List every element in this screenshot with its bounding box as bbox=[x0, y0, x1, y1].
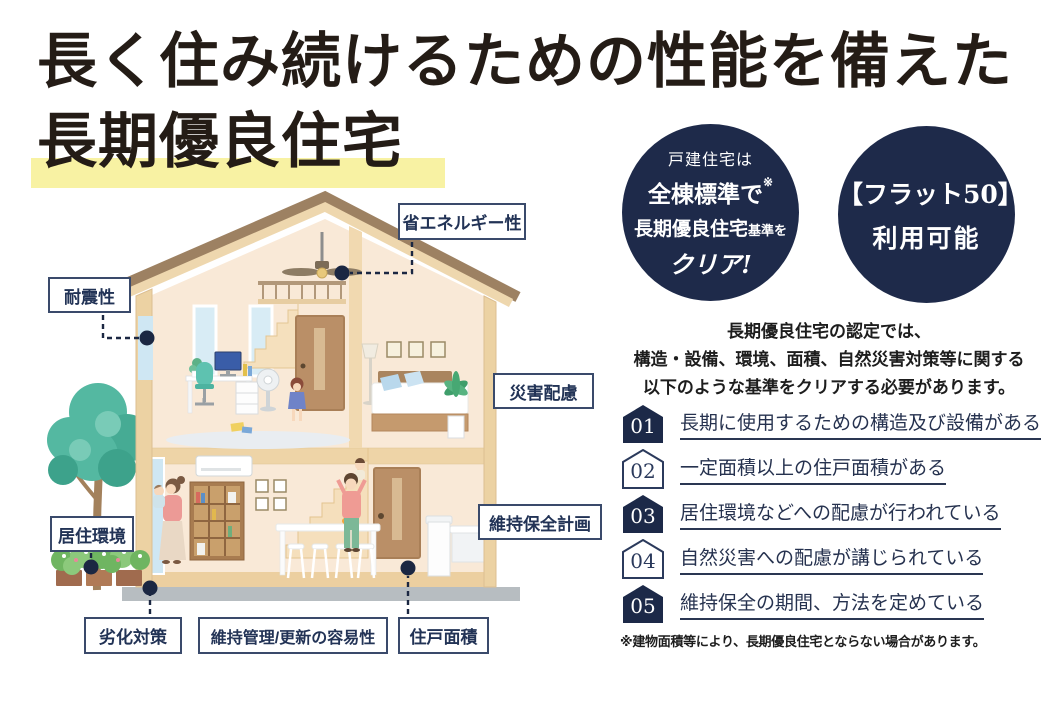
house-label-maintenance-plan: 維持保全計画 bbox=[478, 504, 602, 540]
badge-standard-line1: 戸建住宅は bbox=[668, 146, 753, 170]
page-title-line1: 長く住み続けるための性能を備えた bbox=[37, 32, 1013, 92]
house-label-disaster-consideration: 災害配慮 bbox=[493, 373, 594, 409]
intro-line3: 以下のような基準をクリアする必要があります。 bbox=[598, 374, 1060, 402]
house-number-badge-outline: 04 bbox=[622, 539, 664, 579]
criteria-text: 居住環境などへの配慮が行われている bbox=[680, 498, 1001, 530]
svg-text:04: 04 bbox=[630, 549, 655, 573]
page-title-line2: 長期優良住宅 bbox=[37, 112, 403, 172]
asterisk-note: ※ bbox=[763, 175, 773, 189]
svg-text:03: 03 bbox=[630, 504, 655, 528]
svg-text:01: 01 bbox=[630, 414, 655, 438]
house-number-badge-filled: 05 bbox=[622, 584, 664, 624]
house-label-deterioration-countermeasure: 劣化対策 bbox=[84, 617, 182, 654]
badge-flat50: 【フラット50】 利用可能 bbox=[838, 126, 1015, 303]
svg-text:05: 05 bbox=[630, 594, 655, 618]
badge-flat50-line2: 利用可能 bbox=[872, 219, 980, 255]
badge-flat50-line1: 【フラット50】 bbox=[838, 175, 1015, 211]
badge-standard-clear: 戸建住宅は 全棟標準で※ 長期優良住宅基準を クリア! bbox=[622, 124, 799, 301]
certification-intro: 長期優良住宅の認定では、 構造・設備、環境、面積、自然災害対策等に関する 以下の… bbox=[598, 318, 1060, 402]
house-label-living-environment: 居住環境 bbox=[50, 516, 134, 552]
house-label-maintainability: 維持管理/更新の容易性 bbox=[198, 617, 388, 654]
house-number-badge-outline: 02 bbox=[622, 449, 664, 489]
footnote: ※建物面積等により、長期優良住宅とならない場合があります。 bbox=[620, 631, 985, 650]
house-number-badge-filled: 03 bbox=[622, 494, 664, 534]
criteria-text: 長期に使用するための構造及び設備がある bbox=[680, 408, 1041, 440]
house-number-badge-filled: 01 bbox=[622, 404, 664, 444]
badge-standard-line3: 長期優良住宅基準を bbox=[634, 214, 787, 241]
infographic-page: 長く住み続けるための性能を備えた 長期優良住宅 耐震性 省エネルギー性 災害配慮… bbox=[0, 0, 1060, 706]
criteria-item-4: 04 自然災害への配慮が講じられている bbox=[622, 539, 1041, 579]
criteria-item-5: 05 維持保全の期間、方法を定めている bbox=[622, 584, 1041, 624]
badge-standard-line2: 全棟標準で※ bbox=[648, 175, 773, 209]
house-label-earthquake-resistance: 耐震性 bbox=[48, 277, 131, 313]
intro-line2: 構造・設備、環境、面積、自然災害対策等に関する bbox=[598, 346, 1060, 374]
house-label-floor-area: 住戸面積 bbox=[398, 617, 489, 654]
criteria-item-3: 03 居住環境などへの配慮が行われている bbox=[622, 494, 1041, 534]
criteria-list: 01 長期に使用するための構造及び設備がある 02 一定面積以上の住戸面積がある… bbox=[622, 404, 1041, 629]
badge-standard-line4: クリア! bbox=[669, 245, 752, 280]
criteria-item-2: 02 一定面積以上の住戸面積がある bbox=[622, 449, 1041, 489]
svg-text:02: 02 bbox=[630, 459, 655, 483]
criteria-text: 維持保全の期間、方法を定めている bbox=[680, 588, 984, 620]
criteria-item-1: 01 長期に使用するための構造及び設備がある bbox=[622, 404, 1041, 444]
intro-line1: 長期優良住宅の認定では、 bbox=[598, 318, 1060, 346]
criteria-text: 自然災害への配慮が講じられている bbox=[680, 543, 983, 575]
foundation bbox=[122, 587, 520, 601]
criteria-text: 一定面積以上の住戸面積がある bbox=[680, 453, 946, 485]
house-label-energy-saving: 省エネルギー性 bbox=[398, 203, 526, 240]
